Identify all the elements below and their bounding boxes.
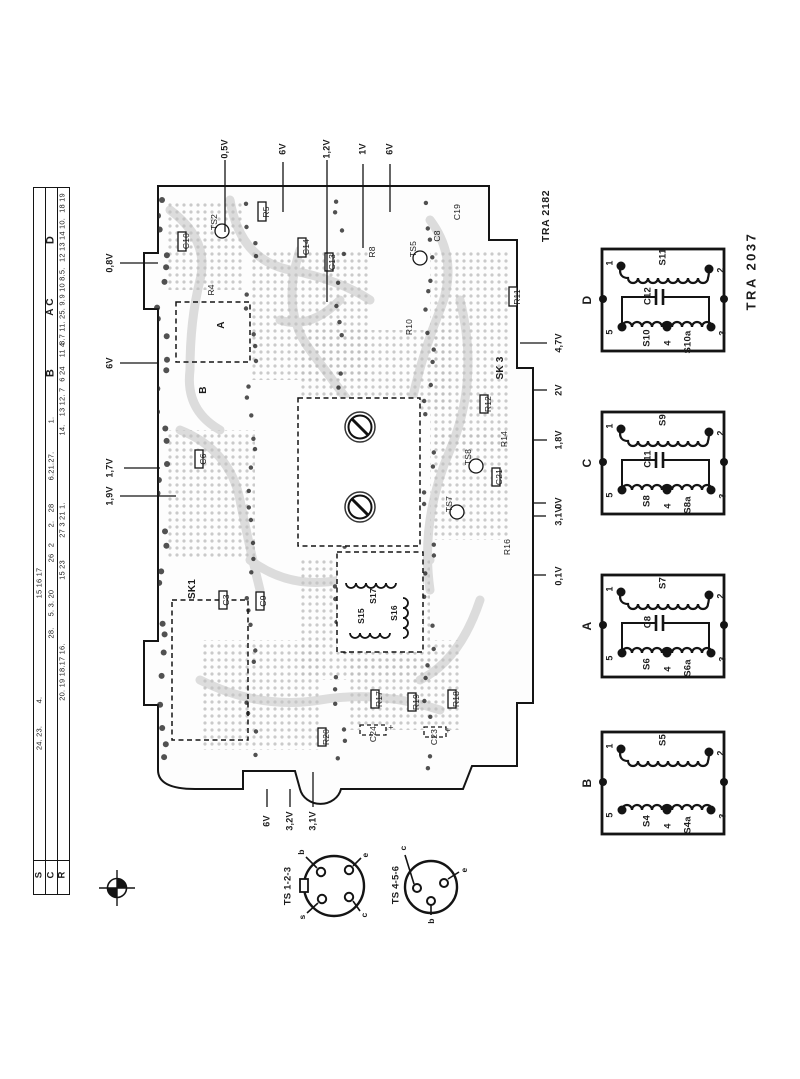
component-label: C13 [328, 254, 337, 270]
ruler-value: 6.21.27. [47, 452, 55, 481]
winding-label: S8 [642, 495, 652, 507]
terminal-number: 1 [605, 586, 614, 591]
ruler-track-C [46, 188, 58, 894]
component-label: TS5 [409, 241, 418, 257]
winding-label: S9 [658, 414, 668, 426]
ruler-value: 9 10 8.5. [59, 268, 67, 299]
component-label: R18 [452, 691, 461, 707]
ruler-value: 28. [47, 627, 55, 638]
component-label: R17 [375, 691, 384, 707]
registration-mark [99, 870, 135, 906]
component-label: C24 [369, 726, 378, 742]
pin-letter-c: c [399, 846, 408, 851]
ruler-value: 24. 23. [35, 726, 43, 750]
terminal-number: 4 [664, 340, 673, 345]
voltage-label: 1,8V [555, 430, 564, 449]
pin-letter-e: e [361, 853, 370, 858]
component-label: R5 [262, 206, 271, 217]
voltage-label: 3,1V [555, 506, 564, 525]
voltage-label: 3,2V [286, 811, 295, 830]
transistor-pinout-art [300, 855, 459, 916]
component-label: TS2 [210, 214, 219, 230]
ruler-value: 12 13 14 10. [59, 218, 67, 262]
component-label: R19 [412, 694, 421, 710]
ruler-value: 15 23 [59, 560, 67, 580]
terminal-number: 3 [718, 656, 727, 661]
component-label: SK1 [188, 579, 198, 599]
winding-label: S6 [642, 658, 652, 670]
connector-label: TS 4-5-6 [391, 866, 401, 905]
voltage-label: 4,7V [555, 333, 564, 352]
component-label: C9 [259, 595, 268, 606]
winding-label: S8a [683, 496, 693, 514]
winding-label: S4 [642, 815, 652, 827]
ruler-row-label-C: C [46, 871, 56, 878]
voltage-label: 1,2V [323, 139, 332, 158]
service-manual-page: TRA 2182 TRA 2037 S15 16 174.24. 23.CDA … [0, 0, 800, 1079]
ruler-value: 20. 19 18.17 16. [59, 643, 67, 700]
connector-label: TS 1-2-3 [283, 867, 293, 906]
ruler-value: 6 24 [59, 366, 67, 381]
winding-label: S11 [658, 249, 668, 266]
component-label: R14 [500, 431, 509, 447]
terminal-number: 4 [664, 666, 673, 671]
ruler-row-label-S: S [34, 872, 44, 879]
voltage-label: 1,7V [106, 458, 115, 477]
voltage-label: 6V [106, 357, 115, 368]
transformer-letter-A: A [581, 622, 593, 631]
component-label: TS8 [464, 449, 473, 465]
component-label: C6 [199, 453, 208, 464]
component-label: R8 [368, 246, 377, 257]
component-label: TS7 [445, 496, 454, 512]
ruler-value: A C [46, 298, 56, 315]
component-label: C8 [433, 230, 442, 241]
terminal-number: 5 [605, 492, 614, 497]
ruler-value: 15 16 17 [35, 568, 43, 599]
voltage-label: 1V [359, 143, 368, 154]
terminal-number: 2 [717, 750, 726, 755]
ruler-value: 28 [47, 504, 55, 513]
pin-letter-c: c [360, 913, 369, 918]
transformer-letter-C: C [581, 459, 593, 468]
component-label: A [217, 321, 227, 328]
ruler-value: B [45, 369, 56, 377]
voltage-label: 1,9V [106, 486, 115, 505]
ruler-value: 2. [47, 521, 55, 528]
transformer-detail-boxes [599, 249, 728, 834]
voltage-label: 2V [555, 384, 564, 395]
pcb-title: TRA 2182 [540, 190, 552, 242]
ruler-track-S [34, 188, 46, 894]
terminal-number: 3 [718, 813, 727, 818]
terminal-number: 5 [605, 329, 614, 334]
terminal-number: 1 [605, 260, 614, 265]
component-label: R20 [322, 729, 331, 745]
voltage-label: 0,5V [221, 139, 230, 158]
pin-letter-b: b [427, 918, 436, 923]
terminal-number: 2 [717, 267, 726, 272]
component-label: C19 [453, 204, 462, 220]
transformer-letter-D: D [581, 296, 593, 305]
component-label: B [199, 386, 209, 393]
terminal-number: 5 [605, 655, 614, 660]
winding-label: S5 [658, 734, 668, 746]
component-label: + [388, 724, 393, 733]
component-label: S17 [369, 588, 378, 604]
voltage-label: 3,1V [309, 811, 318, 830]
ruler-value: 1. [47, 417, 55, 424]
ruler-value: 8.7 11. 25. 9. [59, 299, 67, 345]
ruler-value: 18 19 [59, 193, 67, 213]
voltage-label: 0,8V [106, 253, 115, 272]
winding-label: S4a [683, 816, 693, 834]
component-label: R10 [405, 319, 414, 335]
ruler-value: 26 [47, 554, 55, 563]
component-label: C21 [495, 469, 504, 485]
component-label: C23 [430, 729, 439, 745]
component-label: S16 [390, 605, 399, 621]
component-label: + [445, 727, 450, 736]
winding-label: S10a [683, 331, 693, 354]
terminal-number: 4 [664, 823, 673, 828]
component-label: R16 [503, 539, 512, 555]
ruler-value: 27 3 21 1. [59, 502, 67, 537]
terminal-number: 3 [718, 493, 727, 498]
line-art-layer [0, 0, 800, 1079]
terminal-number: 3 [718, 330, 727, 335]
transformer-letter-B: B [581, 779, 593, 788]
winding-label: S7 [658, 577, 668, 589]
component-label: C3 [222, 594, 231, 605]
component-label: R11 [513, 289, 522, 305]
voltage-label: 6V [386, 143, 395, 154]
component-label: R4 [207, 284, 216, 295]
ruler-value: 2 [47, 543, 55, 547]
capacitor-label: C11 [643, 450, 653, 468]
pin-letter-e: e [460, 868, 469, 873]
capacitor-label: C12 [643, 287, 653, 305]
voltage-label: 0,1V [555, 566, 564, 585]
ruler-value: 14. [59, 424, 67, 435]
ruler-row-label-R: R [58, 871, 68, 878]
ruler-value: 11 4 [59, 343, 67, 358]
component-label: S15 [357, 608, 366, 624]
terminal-number: 2 [717, 593, 726, 598]
voltage-label: 6V [263, 815, 272, 826]
terminal-number: 4 [664, 503, 673, 508]
pin-letter-b: b [297, 849, 306, 854]
terminal-number: 1 [605, 743, 614, 748]
winding-label: S6a [683, 659, 693, 677]
terminal-number: 2 [717, 430, 726, 435]
component-label: R12 [484, 396, 493, 412]
component-label: C10 [182, 233, 191, 249]
transformer-sheet-title: TRA 2037 [744, 232, 759, 311]
pin-letter-s: s [298, 915, 307, 920]
ruler-value: 4. [35, 697, 43, 704]
component-label: SK 3 [496, 356, 506, 379]
terminal-number: 1 [605, 423, 614, 428]
ruler-value: 5. 3. 20 [47, 590, 55, 617]
ruler-value: 13 12. 7 [59, 388, 67, 417]
terminal-number: 5 [605, 812, 614, 817]
voltage-label: 6V [279, 143, 288, 154]
capacitor-label: C8 [643, 616, 653, 629]
component-label: C14 [302, 239, 311, 255]
ruler-value: D [45, 236, 56, 244]
winding-label: S10 [642, 329, 652, 347]
